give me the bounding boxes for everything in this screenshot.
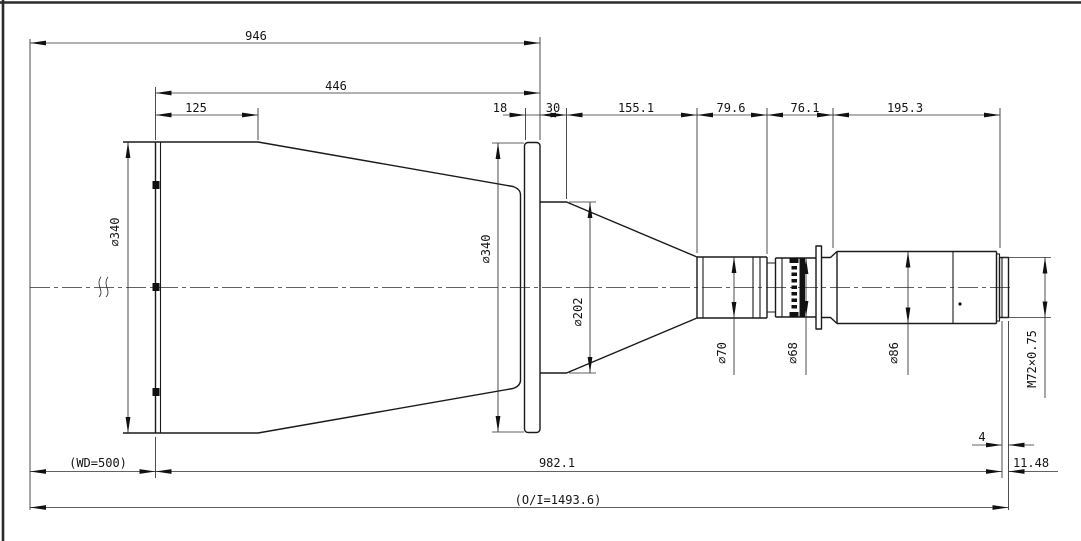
dim-446-text: 446	[325, 79, 347, 93]
axis-break-mark	[99, 277, 101, 297]
dim-wd-text: (WD=500)	[69, 456, 127, 470]
dim-oi-text: (O/I=1493.6)	[515, 493, 602, 507]
front-face-mark	[153, 283, 160, 291]
cone-step-bottom	[540, 318, 697, 373]
dimension-chain-top: 18 30 155.1 79.6 76.1 195.3	[493, 101, 1000, 117]
ring-scale-tick	[792, 299, 798, 303]
cone-step-top	[540, 202, 697, 257]
dim-79-text: 79.6	[717, 101, 746, 115]
ring-scale-tick	[792, 292, 798, 296]
ring-index-block	[790, 312, 799, 317]
ring-scale-tick	[792, 286, 798, 290]
dim-1148-text: 11.48	[1013, 456, 1049, 470]
dim-76-text: 76.1	[791, 101, 820, 115]
dimension-4: 4	[972, 430, 1034, 447]
dimension-446: 446	[156, 79, 541, 95]
dia-hood-text: ∅340	[108, 218, 122, 247]
optical-axis-centerline	[30, 277, 1014, 297]
dia-flange-text: ∅340	[479, 235, 493, 264]
dia-cone-text: ∅202	[571, 298, 585, 327]
dim-195-text: 195.3	[887, 101, 923, 115]
dim-30-text: 30	[546, 101, 560, 115]
dim-946-text: 946	[245, 29, 267, 43]
dia-ring-text: ∅68	[786, 342, 800, 364]
dimension-dia-barrel: ∅86	[887, 252, 910, 376]
dim-4-text: 4	[978, 430, 985, 444]
drawing-canvas: 946 446 125 18 30 155.1 79.6 76.1 195.3	[0, 0, 1081, 541]
dimension-125: 125	[156, 101, 259, 117]
front-face-mark	[153, 181, 160, 189]
dim-982-text: 982.1	[539, 456, 575, 470]
ring-black-band	[800, 258, 806, 317]
dimension-dia-mid: ∅70	[715, 257, 736, 375]
dim-155-text: 155.1	[618, 101, 654, 115]
dimension-wd-982: (WD=500) 982.1	[30, 456, 1002, 474]
lens-drawing-svg: 946 446 125 18 30 155.1 79.6 76.1 195.3	[0, 0, 1081, 541]
ring-index-block	[790, 258, 799, 263]
ring-scale-tick	[792, 273, 798, 277]
dim-18-text: 18	[493, 101, 507, 115]
dia-mid-text: ∅70	[715, 342, 729, 364]
dimension-oi: (O/I=1493.6)	[30, 493, 1009, 510]
dia-barrel-text: ∅86	[887, 342, 901, 364]
front-face-mark	[153, 388, 160, 396]
axis-break-mark	[106, 277, 108, 297]
dimension-946: 946	[30, 29, 540, 45]
dim-125-text: 125	[185, 101, 207, 115]
ring-scale-tick	[792, 279, 798, 283]
thread-callout-text: M72×0.75	[1025, 330, 1039, 388]
ring-scale-tick	[792, 266, 798, 270]
dimension-1148: 11.48	[1009, 456, 1059, 474]
ring-scale-tick	[792, 305, 798, 309]
set-screw-dot	[958, 302, 961, 305]
dimension-thread-callout: M72×0.75	[1025, 258, 1047, 399]
